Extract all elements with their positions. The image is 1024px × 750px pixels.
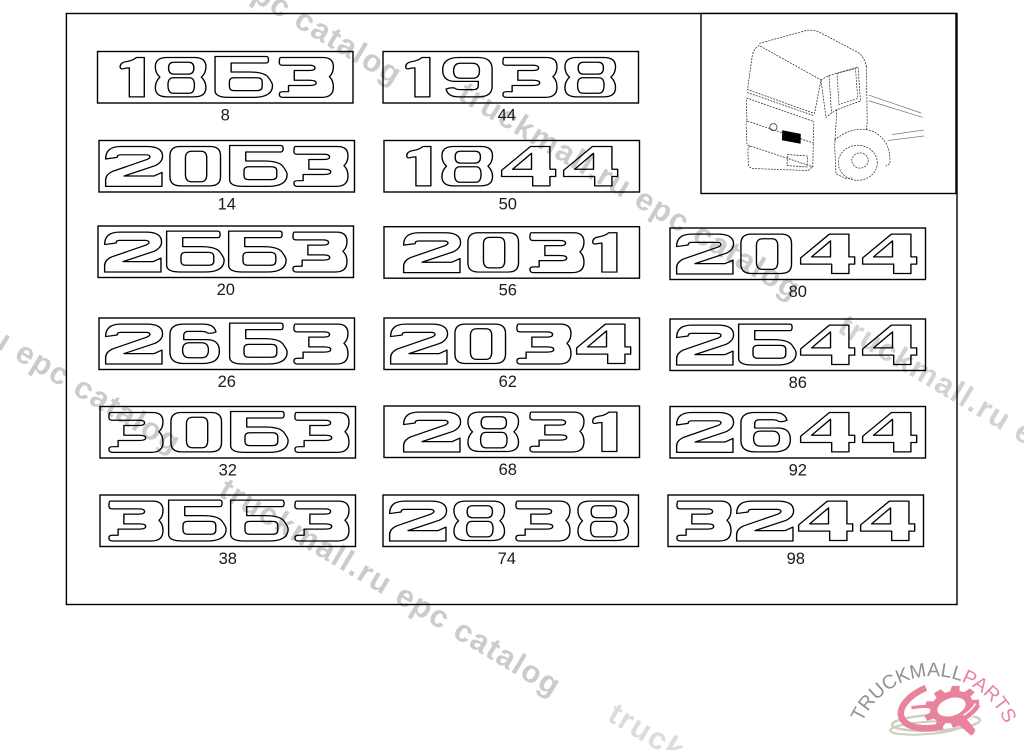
svg-text:92: 92 — [789, 462, 807, 480]
svg-text:8: 8 — [221, 107, 230, 125]
svg-text:44: 44 — [498, 107, 516, 125]
svg-text:68: 68 — [499, 461, 517, 479]
svg-text:50: 50 — [499, 196, 517, 214]
svg-text:38: 38 — [219, 550, 237, 568]
svg-text:74: 74 — [498, 550, 516, 568]
svg-text:62: 62 — [499, 373, 517, 391]
svg-text:56: 56 — [499, 282, 517, 300]
svg-text:20: 20 — [217, 281, 235, 299]
svg-text:26: 26 — [218, 373, 236, 391]
svg-text:14: 14 — [218, 196, 236, 214]
svg-text:80: 80 — [789, 283, 807, 301]
svg-text:32: 32 — [219, 462, 237, 480]
svg-text:86: 86 — [789, 374, 807, 392]
svg-text:98: 98 — [787, 550, 805, 568]
